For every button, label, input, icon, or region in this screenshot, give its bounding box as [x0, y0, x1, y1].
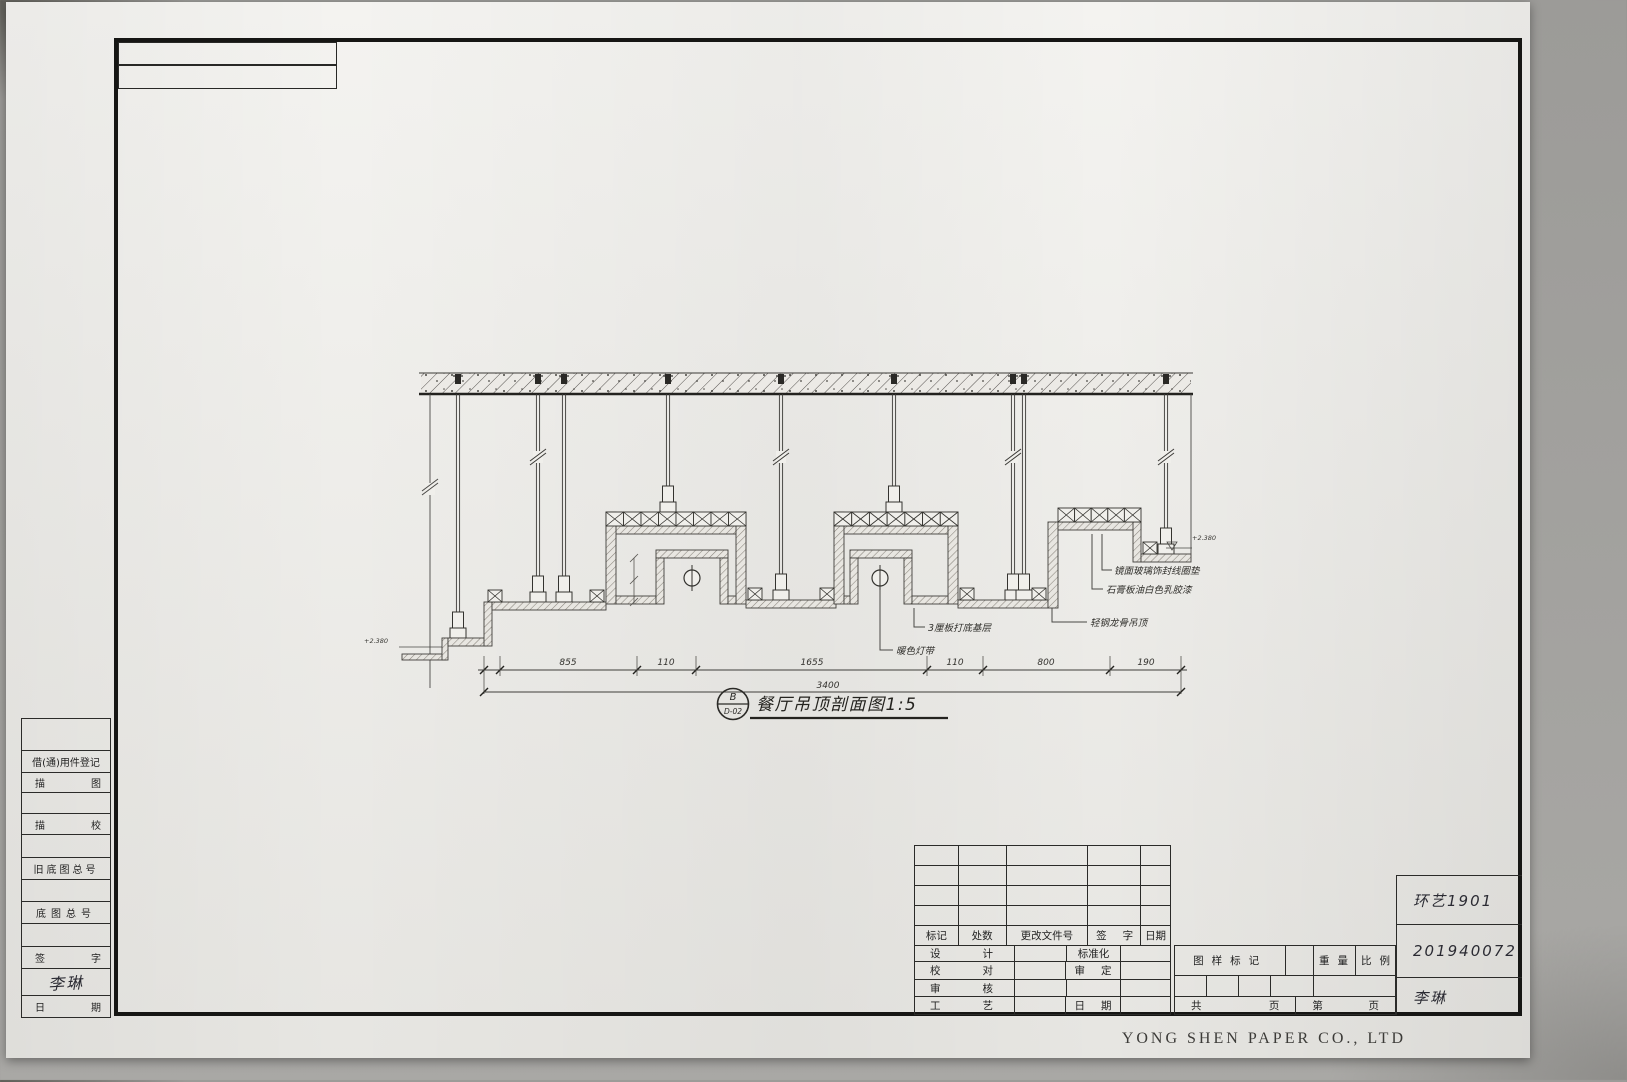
dim-segment: 855: [559, 658, 576, 668]
paper-sheet: 借(通)用件登记 描图 描校 旧底图总号 底图总号 签字 李琳 日期: [6, 2, 1530, 1058]
level-mark-right: +2.380: [1192, 534, 1216, 542]
annotation-leaders: [399, 534, 1192, 650]
title-block: 标记 处数 更改文件号 签字 日期 设计 标准化 校对 审定 审核: [914, 845, 1522, 1015]
lamp-icon: [684, 565, 700, 591]
drawing-title: 餐厅吊顶剖面图1:5: [756, 695, 917, 715]
gypsum-boards: [402, 512, 1191, 660]
standardize-label: 标准化: [1067, 945, 1122, 962]
annotation-steel-keel: 轻钢龙骨吊顶: [1090, 618, 1150, 629]
date-label: 日期: [1066, 997, 1121, 1015]
annotation-gypsum-paint: 石膏板油白色乳胶漆: [1106, 584, 1193, 596]
page-index-prefix: 第: [1312, 998, 1323, 1013]
handwritten-class-name: 环艺1901: [1397, 876, 1522, 925]
revision-table: 标记 处数 更改文件号 签字 日期: [914, 845, 1171, 945]
lamp-icon: [872, 565, 888, 591]
handwritten-name: 李琳: [1397, 978, 1522, 1016]
dim-segment: 110: [946, 658, 963, 668]
dim-total: 3400: [817, 681, 840, 691]
paper-company-watermark: YONG SHEN PAPER CO., LTD: [956, 1030, 1406, 1048]
small-cells-row: [1174, 975, 1396, 997]
detail-tag-sheet-no: D-02: [724, 707, 742, 716]
review-label: 审核: [915, 980, 1015, 997]
detail-tag: B D-02: [718, 689, 749, 720]
annotation-base-board: 3厘板打底基层: [928, 622, 993, 634]
scale-label: 比例: [1356, 946, 1396, 976]
rev-mark-label: 标记: [915, 926, 959, 946]
page-index-suffix: 页: [1369, 998, 1380, 1013]
left-extension-line: [422, 394, 438, 688]
photo-background: { "sheet": { "company": "YONG SHEN PAPER…: [0, 0, 1627, 1080]
rev-file-no-label: 更改文件号: [1007, 926, 1089, 946]
craft-label: 工艺: [915, 997, 1015, 1015]
dim-segment: 190: [1137, 658, 1154, 668]
approve-label: 审定: [1066, 962, 1121, 980]
drawing-mark-label: 图样标记: [1175, 946, 1286, 976]
rev-date-label: 日期: [1141, 926, 1171, 946]
mark-row: 图样标记 重量 比例: [1174, 945, 1396, 975]
level-mark-left: +2.380: [364, 637, 388, 645]
detail-tag-letter: B: [730, 692, 737, 703]
pages-row: 共 页 第 页: [1174, 997, 1396, 1015]
proofread-label: 校对: [915, 962, 1015, 980]
total-pages-prefix: 共: [1191, 998, 1202, 1013]
dim-segment: 1655: [801, 658, 824, 668]
rev-sign-label: 签字: [1088, 926, 1141, 946]
total-pages-cell: 共 页: [1175, 997, 1296, 1015]
handwritten-column: 环艺1901 201940072 李琳: [1396, 875, 1522, 1015]
rev-count-label: 处数: [959, 926, 1007, 946]
annotation-mirror-glass: 镜面玻璃饰封线圈垫: [1114, 565, 1201, 577]
staff-table: 设计 标准化 校对 审定 审核 工艺 日期: [914, 945, 1171, 1015]
handwritten-student-id: 201940072: [1397, 925, 1522, 978]
page-index-cell: 第 页: [1296, 997, 1396, 1015]
total-pages-suffix: 页: [1269, 998, 1280, 1013]
annotation-light-strip: 暖色灯带: [896, 645, 936, 657]
dim-segment: 800: [1037, 658, 1054, 668]
design-label: 设计: [915, 945, 1015, 962]
hanger-rods: [450, 374, 1174, 638]
dim-segment: 110: [657, 658, 674, 668]
weight-label: 重量: [1314, 946, 1356, 976]
